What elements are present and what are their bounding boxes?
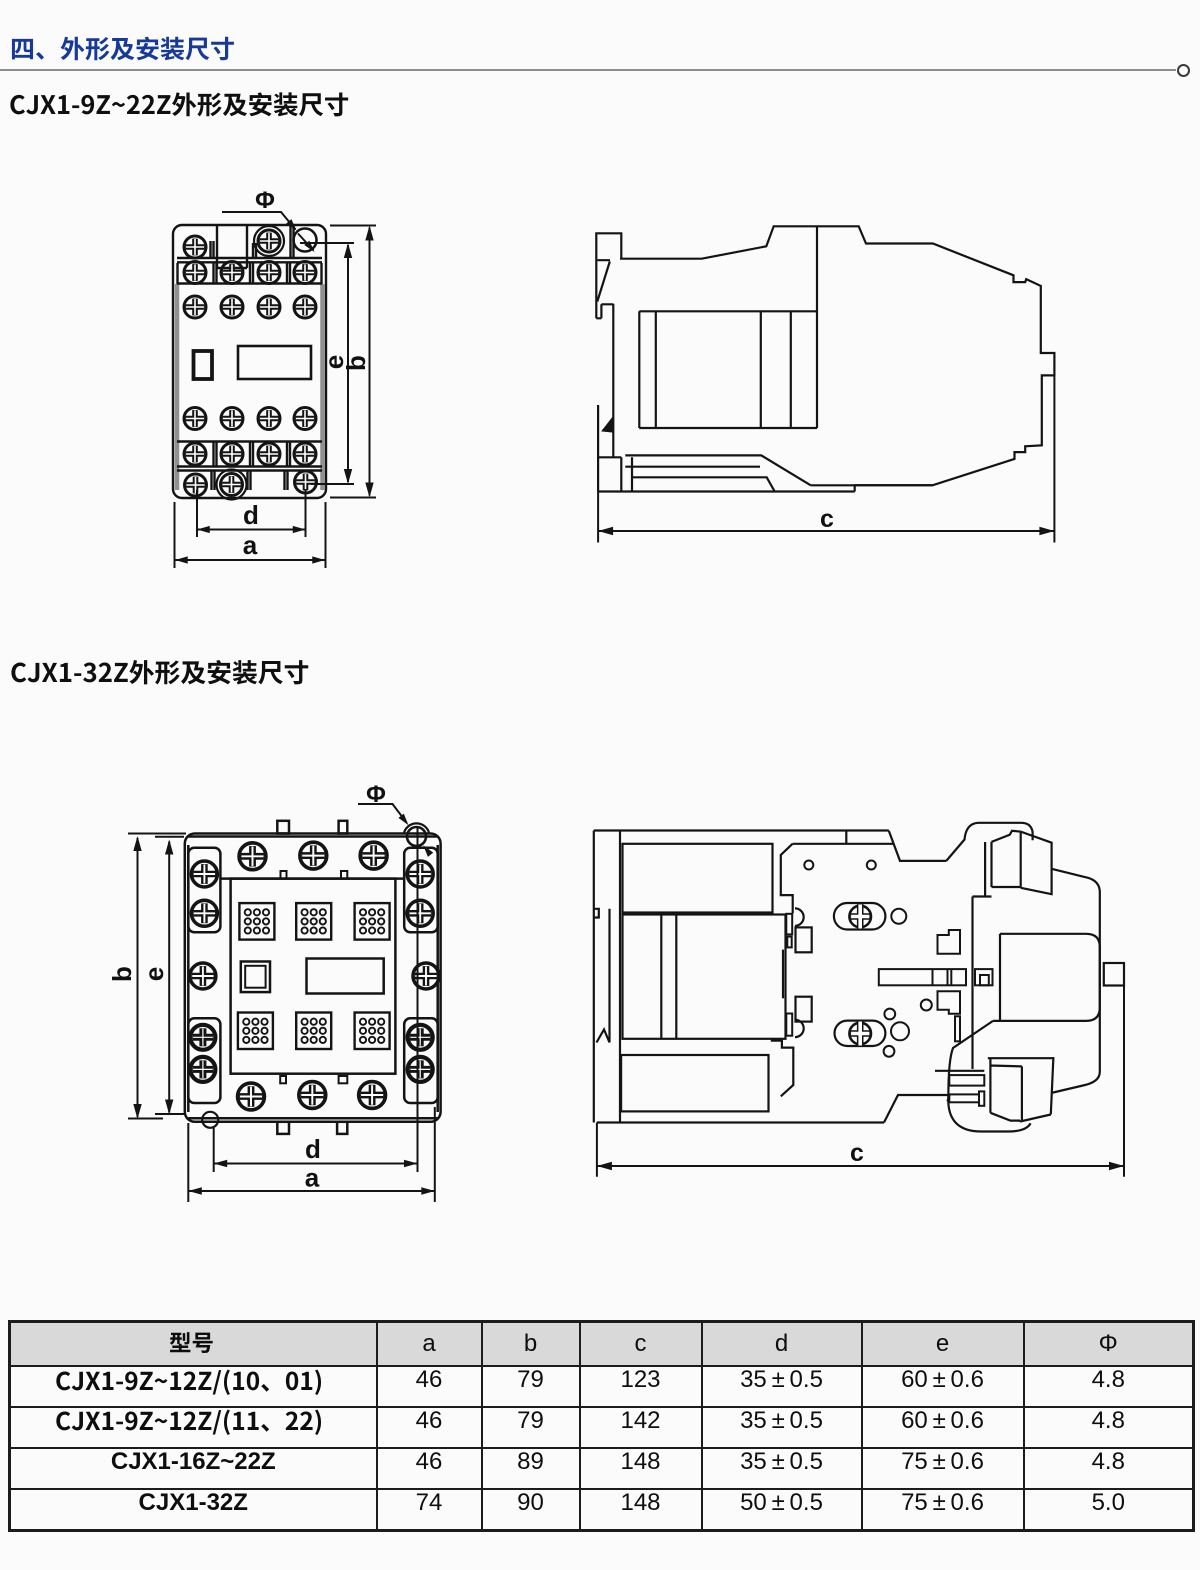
svg-text:b: b — [107, 966, 137, 982]
svg-text:a: a — [305, 1163, 320, 1193]
svg-text:c: c — [850, 1139, 864, 1167]
svg-text:e: e — [139, 967, 169, 981]
svg-text:b: b — [341, 355, 371, 371]
svg-text:Φ: Φ — [255, 187, 275, 214]
svg-text:c: c — [820, 505, 834, 533]
svg-text:d: d — [305, 1134, 321, 1164]
svg-text:d: d — [243, 500, 259, 530]
svg-text:Φ: Φ — [366, 781, 386, 808]
svg-text:a: a — [243, 530, 258, 560]
